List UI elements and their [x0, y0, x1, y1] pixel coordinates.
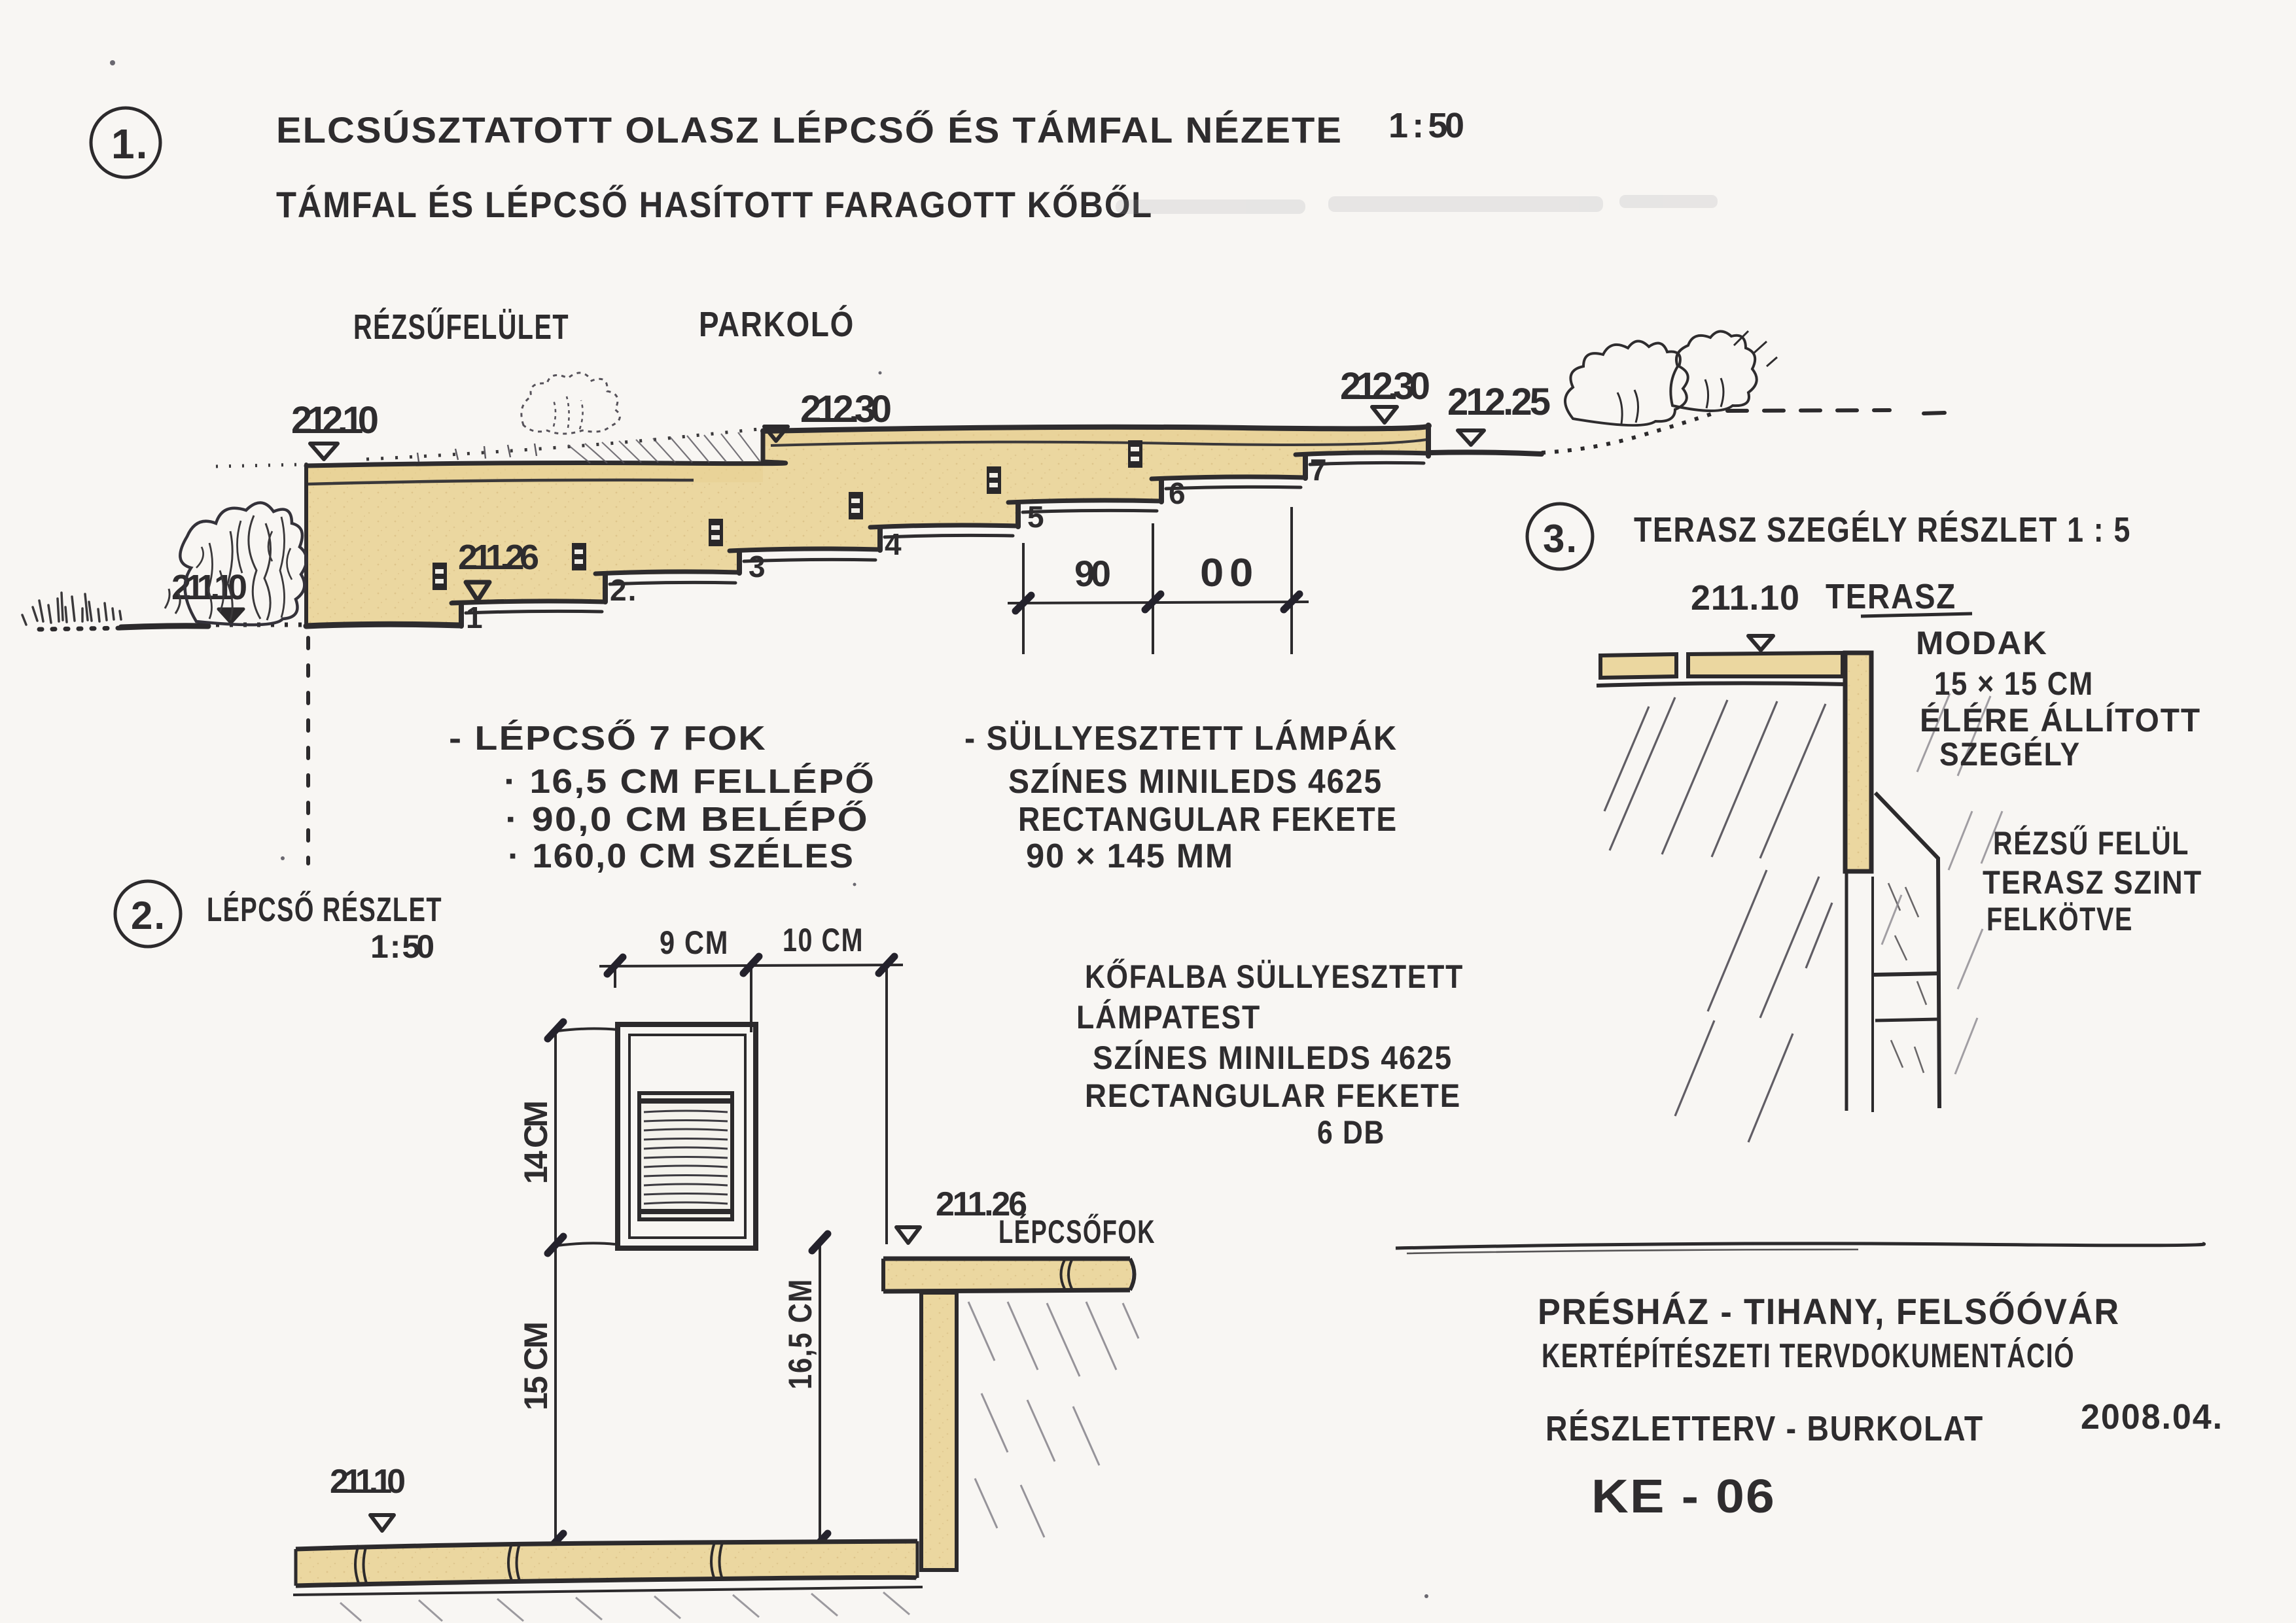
svg-text:LÁMPATEST: LÁMPATEST — [1076, 999, 1261, 1036]
svg-text:15 CM: 15 CM — [518, 1320, 554, 1410]
svg-text:RÉZSŰ FELÜL: RÉZSŰ FELÜL — [1993, 825, 2189, 862]
svg-text:TERASZ SZEGÉLY RÉSZLET 1 : 5: TERASZ SZEGÉLY RÉSZLET 1 : 5 — [1634, 510, 2131, 550]
svg-text:RÉZSŰFELÜLET: RÉZSŰFELÜLET — [353, 307, 569, 347]
svg-text:1: 1 — [466, 601, 484, 635]
svg-text:212.30: 212.30 — [800, 388, 893, 430]
svg-text:6: 6 — [1169, 476, 1187, 510]
svg-text:RECTANGULAR FEKETE: RECTANGULAR FEKETE — [1018, 801, 1398, 839]
svg-text:TERASZ: TERASZ — [1826, 577, 1956, 616]
svg-text:3.: 3. — [1543, 517, 1578, 561]
svg-text:- LÉPCSŐ 7 FOK: - LÉPCSŐ 7 FOK — [449, 719, 767, 758]
svg-text:2.: 2. — [610, 573, 637, 607]
svg-text:10 CM: 10 CM — [783, 922, 864, 958]
svg-text:211.10: 211.10 — [1691, 578, 1801, 618]
svg-text:212.30: 212.30 — [1340, 365, 1432, 408]
svg-text:2008.04.: 2008.04. — [2081, 1397, 2223, 1437]
svg-text:SZEGÉLY: SZEGÉLY — [1939, 736, 2081, 773]
svg-text:15 × 15 CM: 15 × 15 CM — [1934, 665, 2094, 702]
svg-text:211.26: 211.26 — [458, 538, 540, 577]
svg-text:1 : 50: 1 : 50 — [370, 928, 436, 965]
svg-text:TERASZ SZINT: TERASZ SZINT — [1983, 864, 2202, 901]
svg-text:212.25: 212.25 — [1447, 381, 1552, 423]
svg-text:· 160,0 CM SZÉLES: · 160,0 CM SZÉLES — [508, 837, 855, 875]
svg-text:7: 7 — [1310, 453, 1328, 487]
svg-text:FELKÖTVE: FELKÖTVE — [1987, 901, 2133, 937]
svg-text:· 90,0 CM BELÉPŐ: · 90,0 CM BELÉPŐ — [505, 800, 869, 839]
svg-text:SZÍNES MINILEDS 4625: SZÍNES MINILEDS 4625 — [1008, 763, 1383, 801]
svg-text:5: 5 — [1027, 500, 1046, 534]
svg-text:- SÜLLYESZTETT LÁMPÁK: - SÜLLYESZTETT LÁMPÁK — [964, 720, 1398, 758]
svg-text:90: 90 — [1074, 553, 1112, 594]
svg-text:6 DB: 6 DB — [1317, 1114, 1385, 1151]
svg-text:211.10: 211.10 — [171, 568, 249, 607]
svg-text:3: 3 — [749, 550, 767, 584]
svg-text:KE - 06: KE - 06 — [1591, 1471, 1776, 1523]
svg-text:212.10: 212.10 — [291, 399, 380, 442]
svg-text:9 CM: 9 CM — [660, 924, 729, 961]
svg-text:SZÍNES MINILEDS 4625: SZÍNES MINILEDS 4625 — [1093, 1039, 1453, 1076]
svg-text:4: 4 — [885, 527, 903, 561]
svg-text:90 × 145 MM: 90 × 145 MM — [1026, 837, 1234, 875]
svg-text:14 CM: 14 CM — [518, 1099, 554, 1184]
svg-text:· 16,5 CM FELLÉPŐ: · 16,5 CM FELLÉPŐ — [504, 762, 875, 801]
svg-text:KŐFALBA SÜLLYESZTETT: KŐFALBA SÜLLYESZTETT — [1085, 958, 1464, 995]
svg-text:MODAK: MODAK — [1916, 625, 2048, 661]
svg-text:ÉLÉRE ÁLLÍTOTT: ÉLÉRE ÁLLÍTOTT — [1920, 702, 2201, 739]
svg-text:LÉPCSŐFOK: LÉPCSŐFOK — [998, 1213, 1156, 1250]
svg-text:ELCSÚSZTATOTT OLASZ LÉPCSŐ ÉS: ELCSÚSZTATOTT OLASZ LÉPCSŐ ÉS TÁMFAL NÉZ… — [276, 109, 1343, 150]
svg-text:1 : 50: 1 : 50 — [1388, 106, 1466, 145]
svg-text:RÉSZLETTERV - BURKOLAT: RÉSZLETTERV - BURKOLAT — [1545, 1409, 1984, 1448]
svg-text:RECTANGULAR FEKETE: RECTANGULAR FEKETE — [1085, 1077, 1461, 1114]
svg-text:00: 00 — [1200, 551, 1259, 595]
svg-text:LÉPCSŐ RÉSZLET: LÉPCSŐ RÉSZLET — [207, 890, 442, 929]
svg-text:16,5 CM: 16,5 CM — [782, 1278, 819, 1389]
svg-text:TÁMFAL ÉS LÉPCSŐ HASÍTOTT FARA: TÁMFAL ÉS LÉPCSŐ HASÍTOTT FARAGOTT KŐBŐL — [276, 184, 1153, 225]
svg-text:1.: 1. — [111, 120, 149, 167]
svg-text:211.10: 211.10 — [330, 1463, 407, 1501]
svg-text:KERTÉPÍTÉSZETI TERVDOKUMENTÁC: KERTÉPÍTÉSZETI TERVDOKUMENTÁCIÓ — [1542, 1337, 2075, 1375]
svg-text:PARKOLÓ: PARKOLÓ — [699, 305, 855, 344]
svg-text:PRÉSHÁZ - TIHANY, FELSŐÓVÁR: PRÉSHÁZ - TIHANY, FELSŐÓVÁR — [1538, 1291, 2120, 1332]
svg-text:2.: 2. — [131, 894, 166, 937]
